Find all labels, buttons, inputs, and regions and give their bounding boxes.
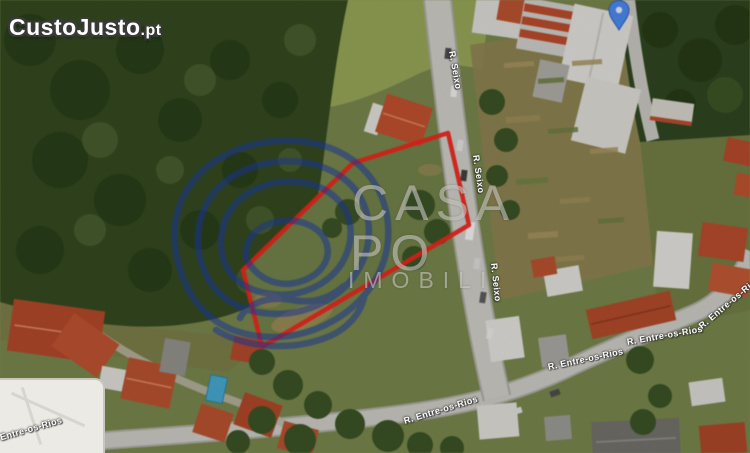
watermark-text-line1: CASA <box>352 178 516 228</box>
custojusto-brand: CustoJusto <box>9 14 141 40</box>
custojusto-tld: .pt <box>141 22 162 39</box>
satellite-listing-photo: CustoJusto.pt CASA PO IMOBILI R. Seixo R… <box>0 0 750 453</box>
inset-road-line <box>21 387 42 445</box>
map-inset-corner <box>0 378 105 453</box>
watermark-text-line3: IMOBILI <box>348 269 495 292</box>
custojusto-logo: CustoJusto.pt <box>9 14 162 41</box>
